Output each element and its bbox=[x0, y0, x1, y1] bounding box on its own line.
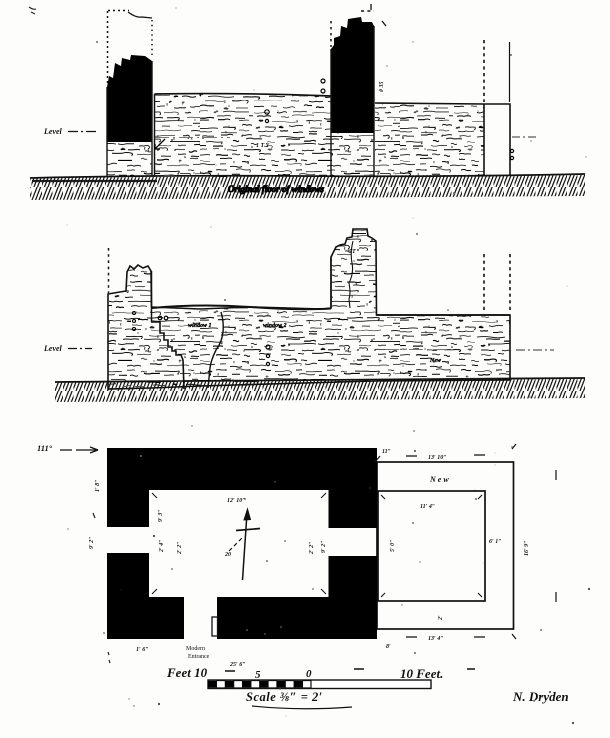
svg-text:New: New bbox=[429, 358, 442, 364]
svg-text:Level: Level bbox=[43, 127, 63, 136]
svg-text:5T: 5T bbox=[349, 249, 356, 255]
svg-text:111°: 111° bbox=[37, 443, 53, 453]
svg-text:10 Feet.: 10 Feet. bbox=[400, 666, 443, 681]
svg-text:window 2: window 2 bbox=[263, 323, 287, 329]
svg-text:1′ 6″: 1′ 6″ bbox=[136, 647, 149, 653]
svg-text:Entrance: Entrance bbox=[188, 654, 210, 660]
svg-text:16′ 9″: 16′ 9″ bbox=[524, 540, 530, 556]
svg-text:1 T Y: 1 T Y bbox=[256, 143, 271, 149]
svg-text:New: New bbox=[429, 475, 451, 484]
svg-text:9′ 2″: 9′ 2″ bbox=[321, 540, 327, 553]
svg-text:8′: 8′ bbox=[386, 644, 391, 650]
svg-text:12′ 10″: 12′ 10″ bbox=[227, 498, 246, 504]
svg-text:window 1: window 1 bbox=[188, 323, 212, 329]
svg-text:Scale ⅜″ = 2′: Scale ⅜″ = 2′ bbox=[246, 690, 323, 704]
svg-text:11″: 11″ bbox=[382, 449, 391, 455]
svg-text:9′ 2″: 9′ 2″ bbox=[89, 536, 95, 549]
svg-text:25′ 6″: 25′ 6″ bbox=[229, 662, 246, 668]
svg-text:20: 20 bbox=[224, 552, 231, 558]
svg-text:6′ 1″: 6′ 1″ bbox=[489, 539, 502, 545]
svg-text:1′ 8″: 1′ 8″ bbox=[95, 479, 101, 492]
svg-text:0: 0 bbox=[306, 668, 312, 680]
svg-text:Original floor of windows: Original floor of windows bbox=[228, 184, 324, 194]
svg-text:2′ 4″: 2′ 4″ bbox=[159, 539, 165, 553]
svg-text:11′ 4″: 11′ 4″ bbox=[420, 504, 435, 510]
svg-text:9′ 3″: 9′ 3″ bbox=[158, 509, 164, 522]
svg-text:Modern: Modern bbox=[186, 646, 205, 652]
svg-text:13′ 4″: 13′ 4″ bbox=[428, 636, 444, 642]
svg-text:5: 5 bbox=[255, 669, 261, 681]
svg-text:# 35: # 35 bbox=[379, 82, 385, 94]
svg-text:5′ 0″: 5′ 0″ bbox=[390, 539, 396, 552]
svg-text:2′ 2″: 2′ 2″ bbox=[177, 541, 183, 555]
svg-text:N. Dryden: N. Dryden bbox=[512, 689, 569, 704]
svg-text:2′ 2″: 2′ 2″ bbox=[309, 541, 315, 555]
svg-text:2′: 2′ bbox=[438, 615, 444, 621]
svg-text:13′ 10″: 13′ 10″ bbox=[428, 455, 447, 461]
svg-text:Feet 10: Feet 10 bbox=[166, 665, 208, 680]
svg-text:Level: Level bbox=[43, 344, 63, 353]
